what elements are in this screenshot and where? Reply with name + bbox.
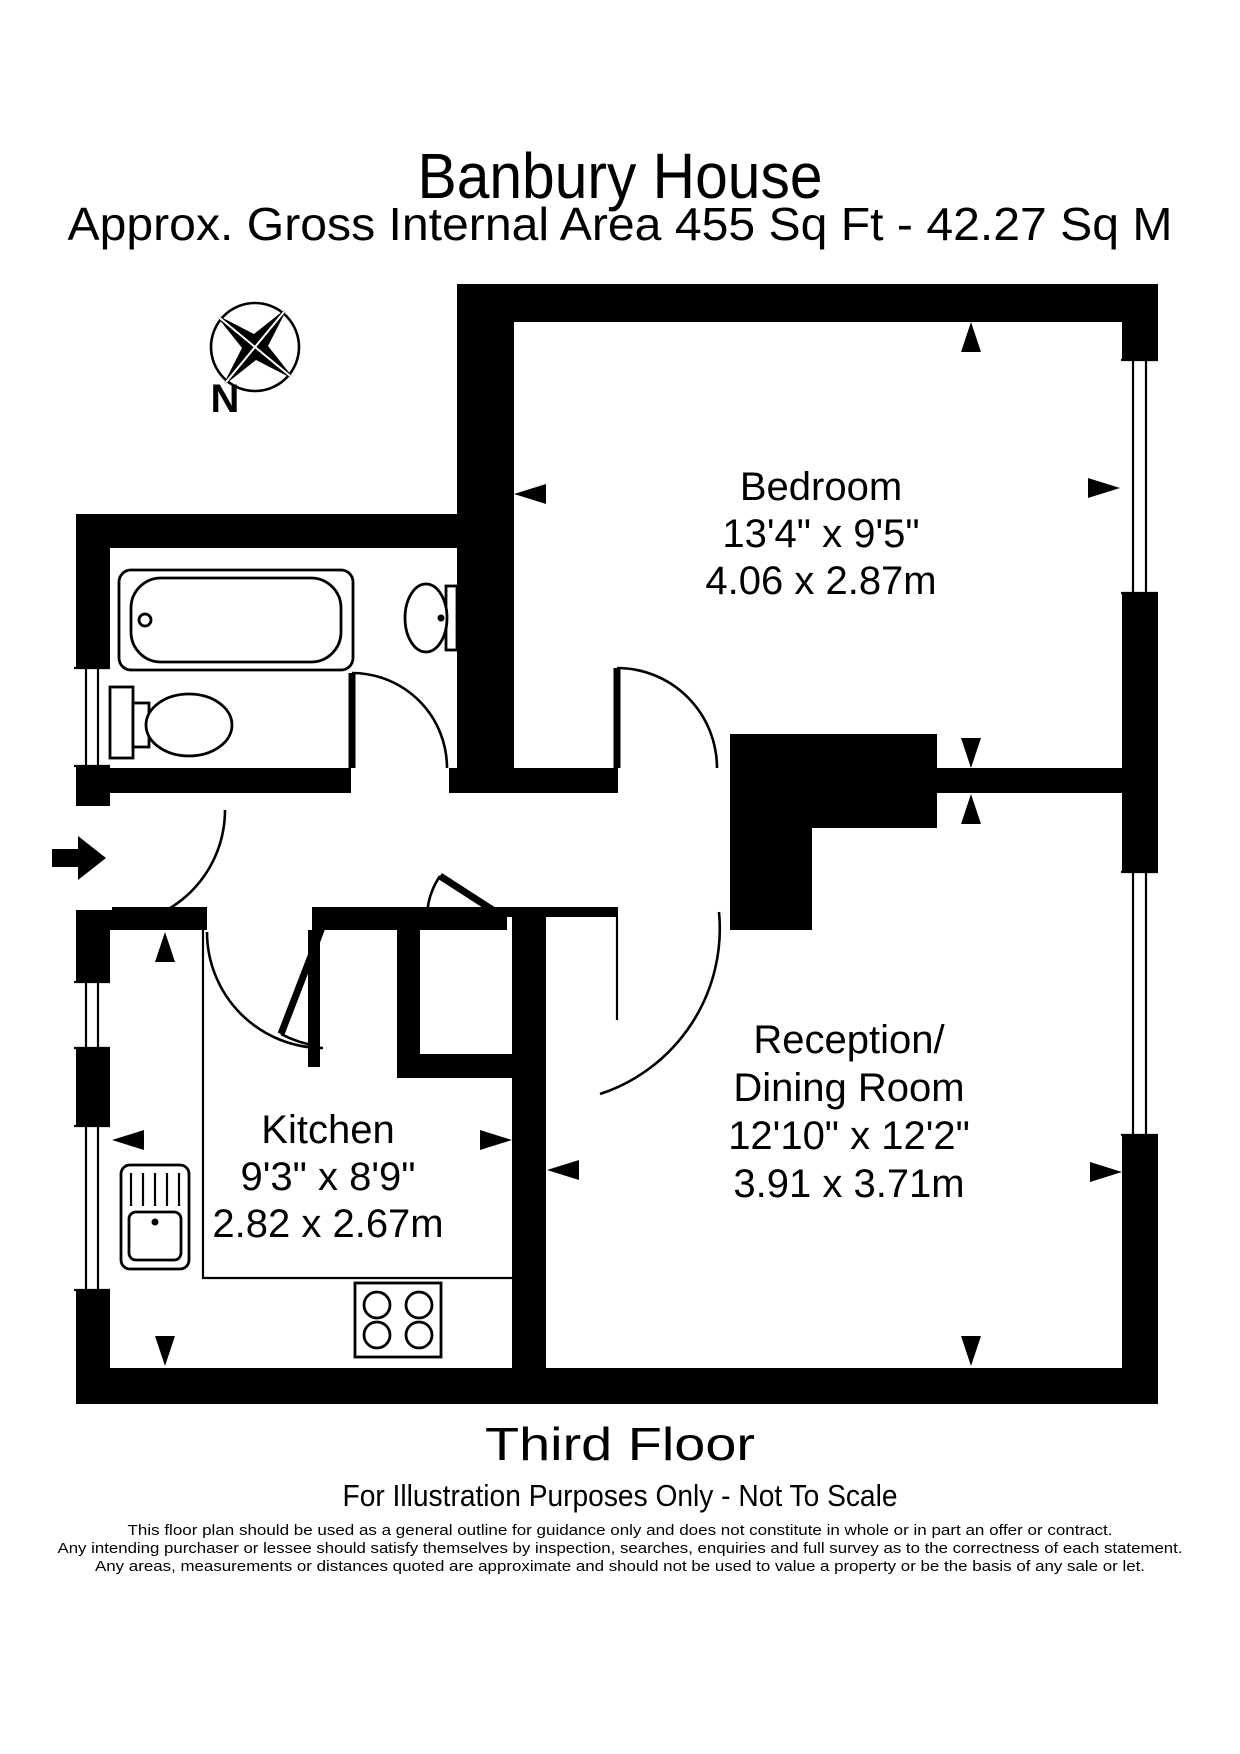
footer: Third Floor For Illustration Purposes On… [58, 1418, 1183, 1575]
disclaimer-line-1: This floor plan should be used as a gene… [128, 1522, 1113, 1539]
kitchen-arrow-right-icon [480, 1130, 512, 1150]
scale-note: For Illustration Purposes Only - Not To … [343, 1478, 898, 1513]
bedroom-imperial: 13'4" x 9'5" [722, 512, 919, 556]
bathroom-sink-icon [405, 584, 457, 652]
bathroom-door [352, 673, 447, 768]
bedroom-metric: 4.06 x 2.87m [705, 559, 936, 603]
kitchen-arrow-down-icon [155, 1336, 175, 1366]
hob-icon [355, 1283, 441, 1357]
chimney-breast-upper [730, 734, 937, 828]
wall-party [457, 284, 514, 793]
kitchen-metric: 2.82 x 2.67m [212, 1202, 443, 1246]
kitchen-label: Kitchen 9'3" x 8'9" 2.82 x 2.67m [212, 1108, 443, 1246]
wall-hall-bedroom [449, 768, 618, 793]
floor-label: Third Floor [485, 1418, 755, 1470]
reception-arrow-right-icon [1090, 1162, 1122, 1182]
reception-metric: 3.91 x 3.71m [733, 1162, 964, 1206]
bedroom-arrow-left-icon [514, 484, 546, 504]
floorplan-page: Banbury House Approx. Gross Internal Are… [0, 0, 1240, 1754]
compass-icon: N [211, 303, 299, 421]
wall-bathroom-top [76, 514, 457, 548]
wall-kitchen-top-left [110, 907, 207, 930]
wall-kitchen-top-right [312, 907, 507, 930]
floorplan-canvas: Banbury House Approx. Gross Internal Are… [0, 0, 1240, 1754]
bedroom-arrow-up-icon [961, 322, 981, 352]
kitchen-sink-icon [121, 1165, 189, 1269]
reception-label: Reception/ Dining Room 12'10" x 12'2" 3.… [728, 1018, 970, 1206]
chimney-breast-leg [730, 828, 812, 930]
reception-imperial: 12'10" x 12'2" [728, 1114, 970, 1158]
wall-top [457, 284, 1158, 322]
wall-kitchen-reception [512, 907, 546, 1404]
bedroom-door [617, 668, 717, 768]
bathroom-window [74, 668, 112, 766]
bedroom-window [1120, 360, 1160, 593]
bedroom-arrow-down-icon [961, 738, 981, 768]
reception-name-1: Reception/ [753, 1018, 945, 1062]
bedroom-arrow-right-icon [1088, 478, 1120, 498]
kitchen-arrow-up-icon [155, 932, 175, 962]
toilet-icon [110, 687, 232, 758]
reception-window [1120, 872, 1160, 1135]
reception-arrow-left-icon [547, 1160, 579, 1180]
kitchen-arrow-left-icon [112, 1130, 144, 1150]
page-subtitle: Approx. Gross Internal Area 455 Sq Ft - … [68, 198, 1173, 250]
disclaimer-line-2: Any intending purchaser or lessee should… [58, 1540, 1183, 1557]
kitchen-window-2 [74, 1126, 112, 1290]
bedroom-label: Bedroom 13'4" x 9'5" 4.06 x 2.87m [705, 465, 936, 603]
bedroom-name: Bedroom [740, 465, 902, 509]
windows [74, 360, 1160, 1290]
bathtub-icon [119, 570, 353, 670]
compass-north-label: N [211, 377, 240, 421]
kitchen-imperial: 9'3" x 8'9" [241, 1155, 416, 1199]
reception-arrow-up-icon [961, 794, 981, 824]
wall-bathroom-bottom [76, 768, 351, 793]
reception-name-2: Dining Room [733, 1066, 964, 1110]
wall-bottom [76, 1368, 1158, 1404]
wall-bedroom-reception [937, 768, 1122, 793]
kitchen-door [207, 925, 323, 1048]
reception-arrow-down-icon [961, 1336, 981, 1366]
disclaimer-line-3: Any areas, measurements or distances quo… [95, 1558, 1145, 1575]
header: Banbury House Approx. Gross Internal Are… [68, 140, 1173, 250]
kitchen-name: Kitchen [261, 1108, 394, 1152]
kitchen-window-1 [74, 982, 112, 1048]
